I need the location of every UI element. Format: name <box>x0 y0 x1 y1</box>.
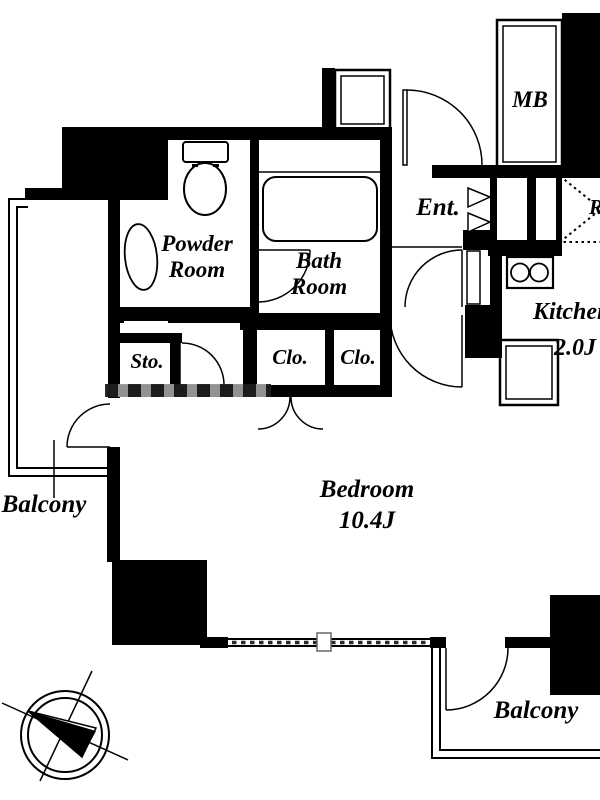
bedroom-label-name: Bedroom <box>320 474 414 505</box>
refrigerator-label: R <box>589 195 600 220</box>
kitchen-size-label: 2.0J <box>554 335 596 362</box>
bedroom-label-size: 10.4J <box>320 505 414 536</box>
bath-room-label: Bath Room <box>291 248 347 300</box>
storage-label: Sto. <box>130 349 163 374</box>
watermark-band <box>105 384 271 397</box>
powder-room-label: Powder Room <box>161 231 233 283</box>
powder-room-label-line1: Powder <box>161 231 233 257</box>
balcony-left-label: Balcony <box>2 491 87 519</box>
meter-box-label: MB <box>512 87 548 113</box>
kitchen-sink-icon <box>500 340 558 405</box>
floor-plan: Powder Room Bath Room Sto. Clo. Clo. Ent… <box>0 0 600 800</box>
bath-room-label-line1: Bath <box>291 248 347 274</box>
bathtub-icon <box>263 177 377 241</box>
closet-right-label: Clo. <box>340 345 376 370</box>
kitchen-label: Kitchen <box>533 299 600 326</box>
pipe-shaft-box <box>335 70 390 130</box>
bedroom-label: Bedroom 10.4J <box>320 474 414 536</box>
balcony-bottom-label: Balcony <box>494 697 579 725</box>
floor-plan-drawing <box>0 0 600 800</box>
toilet-icon <box>183 142 228 215</box>
bath-room-label-line2: Room <box>291 274 347 300</box>
entry-door-leaf-icons <box>468 188 490 232</box>
compass-north-icon <box>2 671 128 781</box>
entrance-label: Ent. <box>416 194 460 222</box>
two-burner-stove-icon <box>507 257 553 288</box>
sink-icon <box>122 223 161 292</box>
powder-room-label-line2: Room <box>161 257 233 283</box>
closet-left-label: Clo. <box>272 345 308 370</box>
walls <box>25 13 600 695</box>
bedroom-window <box>228 633 432 651</box>
